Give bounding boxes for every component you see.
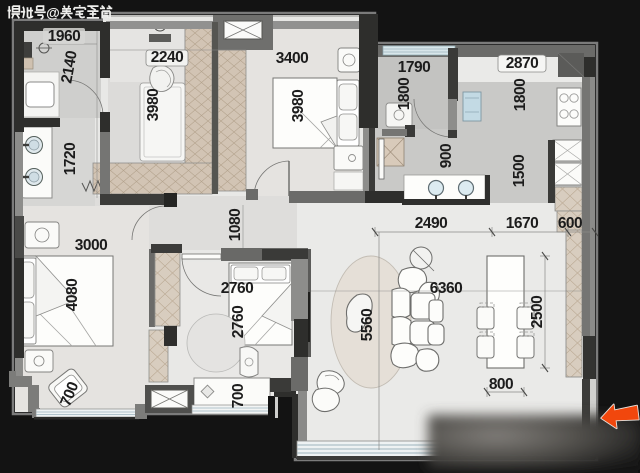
svg-text:2760: 2760 bbox=[230, 306, 247, 338]
svg-text:1720: 1720 bbox=[62, 143, 79, 175]
svg-text:2870: 2870 bbox=[506, 55, 538, 72]
svg-text:800: 800 bbox=[489, 376, 513, 393]
svg-text:2240: 2240 bbox=[151, 49, 183, 66]
svg-text:3000: 3000 bbox=[75, 237, 107, 254]
svg-text:900: 900 bbox=[438, 144, 455, 168]
svg-text:1670: 1670 bbox=[506, 215, 538, 232]
svg-text:600: 600 bbox=[558, 215, 582, 232]
svg-text:2500: 2500 bbox=[529, 296, 546, 328]
svg-text:2490: 2490 bbox=[415, 215, 447, 232]
svg-text:3980: 3980 bbox=[290, 90, 307, 122]
svg-text:6360: 6360 bbox=[430, 280, 462, 297]
svg-text:3980: 3980 bbox=[145, 89, 162, 121]
svg-text:1800: 1800 bbox=[512, 79, 529, 111]
svg-text:@: @ bbox=[46, 4, 60, 20]
svg-text:1790: 1790 bbox=[398, 59, 430, 76]
svg-text:1080: 1080 bbox=[227, 209, 244, 241]
svg-text:2760: 2760 bbox=[221, 280, 253, 297]
svg-text:1960: 1960 bbox=[48, 28, 80, 45]
svg-text:700: 700 bbox=[230, 384, 247, 408]
svg-text:1800: 1800 bbox=[396, 78, 413, 110]
svg-text:1500: 1500 bbox=[511, 155, 528, 187]
svg-text:3400: 3400 bbox=[276, 50, 308, 67]
svg-text:5560: 5560 bbox=[359, 309, 376, 341]
svg-text:4080: 4080 bbox=[64, 279, 81, 311]
